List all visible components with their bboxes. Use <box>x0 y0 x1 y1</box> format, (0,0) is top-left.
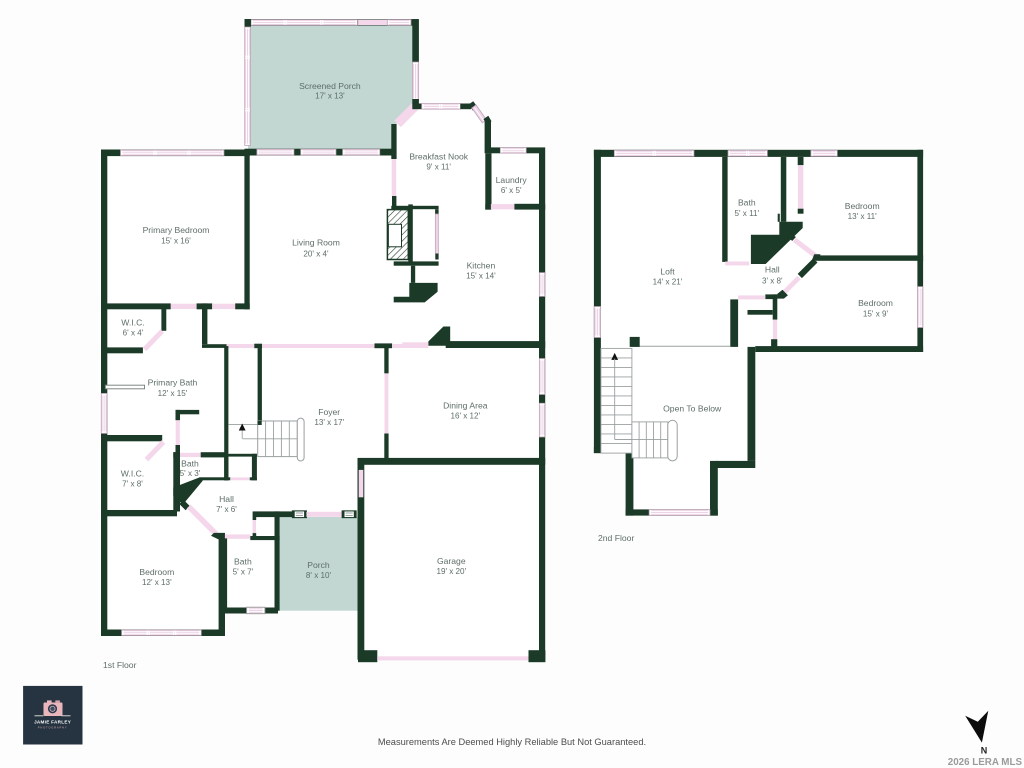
svg-text:Dining Area: Dining Area <box>443 401 488 411</box>
svg-text:Bedroom: Bedroom <box>858 298 893 308</box>
svg-text:12' x 13': 12' x 13' <box>142 578 172 587</box>
svg-text:Hall: Hall <box>219 494 234 504</box>
svg-text:15' x 16': 15' x 16' <box>161 237 191 246</box>
svg-text:14' x 21': 14' x 21' <box>653 277 683 286</box>
svg-text:7' x 6': 7' x 6' <box>216 505 237 514</box>
svg-text:Kitchen: Kitchen <box>467 261 496 271</box>
svg-text:Screened Porch: Screened Porch <box>299 81 361 91</box>
svg-text:Open To Below: Open To Below <box>663 404 722 414</box>
svg-text:9' x 11': 9' x 11' <box>426 163 451 172</box>
svg-text:5' x 7': 5' x 7' <box>233 567 254 576</box>
svg-text:3' x 8': 3' x 8' <box>762 276 783 285</box>
svg-text:Laundry: Laundry <box>496 175 528 185</box>
svg-text:8' x 10': 8' x 10' <box>306 571 332 580</box>
svg-text:13' x 17': 13' x 17' <box>314 418 344 427</box>
svg-text:Loft: Loft <box>660 266 675 276</box>
svg-text:JAMIE FARLEY: JAMIE FARLEY <box>34 719 71 724</box>
svg-text:1st Floor: 1st Floor <box>103 660 137 670</box>
svg-text:Porch: Porch <box>307 560 330 570</box>
svg-text:19' x 20': 19' x 20' <box>436 567 466 576</box>
svg-text:7' x 8': 7' x 8' <box>122 480 143 489</box>
svg-text:Bedroom: Bedroom <box>139 567 174 577</box>
svg-text:2nd Floor: 2nd Floor <box>598 533 634 543</box>
svg-text:Garage: Garage <box>437 556 466 566</box>
svg-text:Breakfast Nook: Breakfast Nook <box>409 152 468 162</box>
svg-text:N: N <box>981 746 988 756</box>
svg-text:W.I.C.: W.I.C. <box>121 317 144 327</box>
svg-text:16' x 12': 16' x 12' <box>450 412 480 421</box>
svg-text:Bedroom: Bedroom <box>845 201 880 211</box>
svg-text:Hall: Hall <box>765 265 780 275</box>
svg-text:Bath: Bath <box>738 198 756 208</box>
svg-text:17' x 13': 17' x 13' <box>315 92 345 101</box>
svg-text:15' x 14': 15' x 14' <box>466 272 496 281</box>
svg-text:W.I.C.: W.I.C. <box>121 469 144 479</box>
svg-text:5' x 3': 5' x 3' <box>180 469 201 478</box>
svg-text:6' x 4': 6' x 4' <box>123 328 144 337</box>
svg-text:2026 LERA MLS: 2026 LERA MLS <box>948 757 1023 768</box>
svg-text:Bath: Bath <box>181 459 199 469</box>
svg-text:6' x 5': 6' x 5' <box>501 186 522 195</box>
svg-text:Primary Bedroom: Primary Bedroom <box>143 225 210 235</box>
svg-text:Foyer: Foyer <box>318 407 340 417</box>
svg-text:12' x 15': 12' x 15' <box>158 389 188 398</box>
svg-text:Measurements Are Deemed Highly: Measurements Are Deemed Highly Reliable … <box>378 737 646 747</box>
svg-text:15' x 9': 15' x 9' <box>863 309 889 318</box>
svg-text:PHOTOGRAPHY: PHOTOGRAPHY <box>38 725 68 729</box>
svg-text:Primary Bath: Primary Bath <box>148 377 198 387</box>
svg-text:5' x 11': 5' x 11' <box>735 209 760 218</box>
svg-text:Living Room: Living Room <box>292 238 340 248</box>
svg-text:13' x 11': 13' x 11' <box>848 212 877 221</box>
svg-text:Bath: Bath <box>234 556 252 566</box>
svg-text:20' x 4': 20' x 4' <box>303 250 329 259</box>
